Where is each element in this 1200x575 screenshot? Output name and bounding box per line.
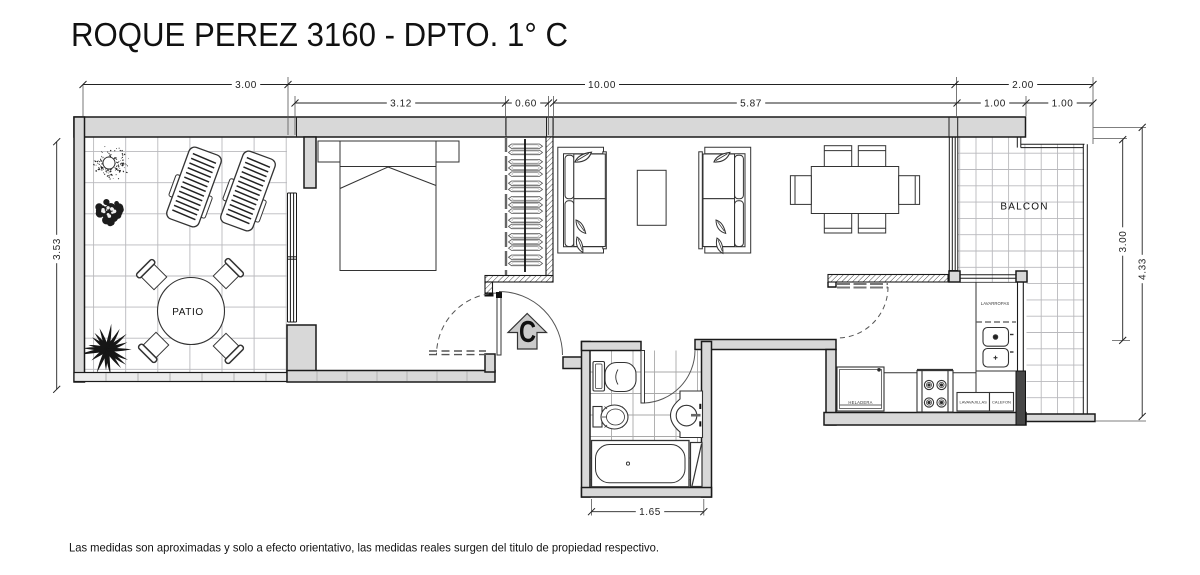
svg-text:LAVAVAJILLAS: LAVAVAJILLAS	[960, 400, 988, 405]
svg-text:3.12: 3.12	[390, 98, 412, 109]
svg-text:LAVARROPAS: LAVARROPAS	[981, 301, 1010, 306]
svg-text:0.60: 0.60	[515, 98, 537, 109]
svg-text:1.65: 1.65	[639, 507, 661, 518]
svg-text:3.00: 3.00	[1118, 231, 1129, 253]
svg-text:1.00: 1.00	[1052, 98, 1074, 109]
svg-text:1.00: 1.00	[984, 98, 1006, 109]
svg-text:2.00: 2.00	[1012, 80, 1034, 91]
svg-text:HELADERA: HELADERA	[848, 400, 872, 405]
svg-text:3.00: 3.00	[235, 80, 257, 91]
svg-text:PATIO: PATIO	[172, 307, 204, 318]
svg-text:BALCON: BALCON	[1000, 202, 1048, 213]
svg-text:CALEFON: CALEFON	[992, 400, 1011, 405]
svg-text:C: C	[519, 314, 536, 349]
svg-text:10.00: 10.00	[588, 80, 616, 91]
svg-text:Las medidas son aproximadas y: Las medidas son aproximadas y solo a efe…	[69, 542, 659, 555]
svg-text:ROQUE PEREZ 3160 - DPTO. 1° C: ROQUE PEREZ 3160 - DPTO. 1° C	[71, 17, 568, 54]
svg-text:3.53: 3.53	[52, 238, 63, 260]
svg-text:4.33: 4.33	[1138, 258, 1149, 280]
svg-text:5.87: 5.87	[740, 98, 762, 109]
